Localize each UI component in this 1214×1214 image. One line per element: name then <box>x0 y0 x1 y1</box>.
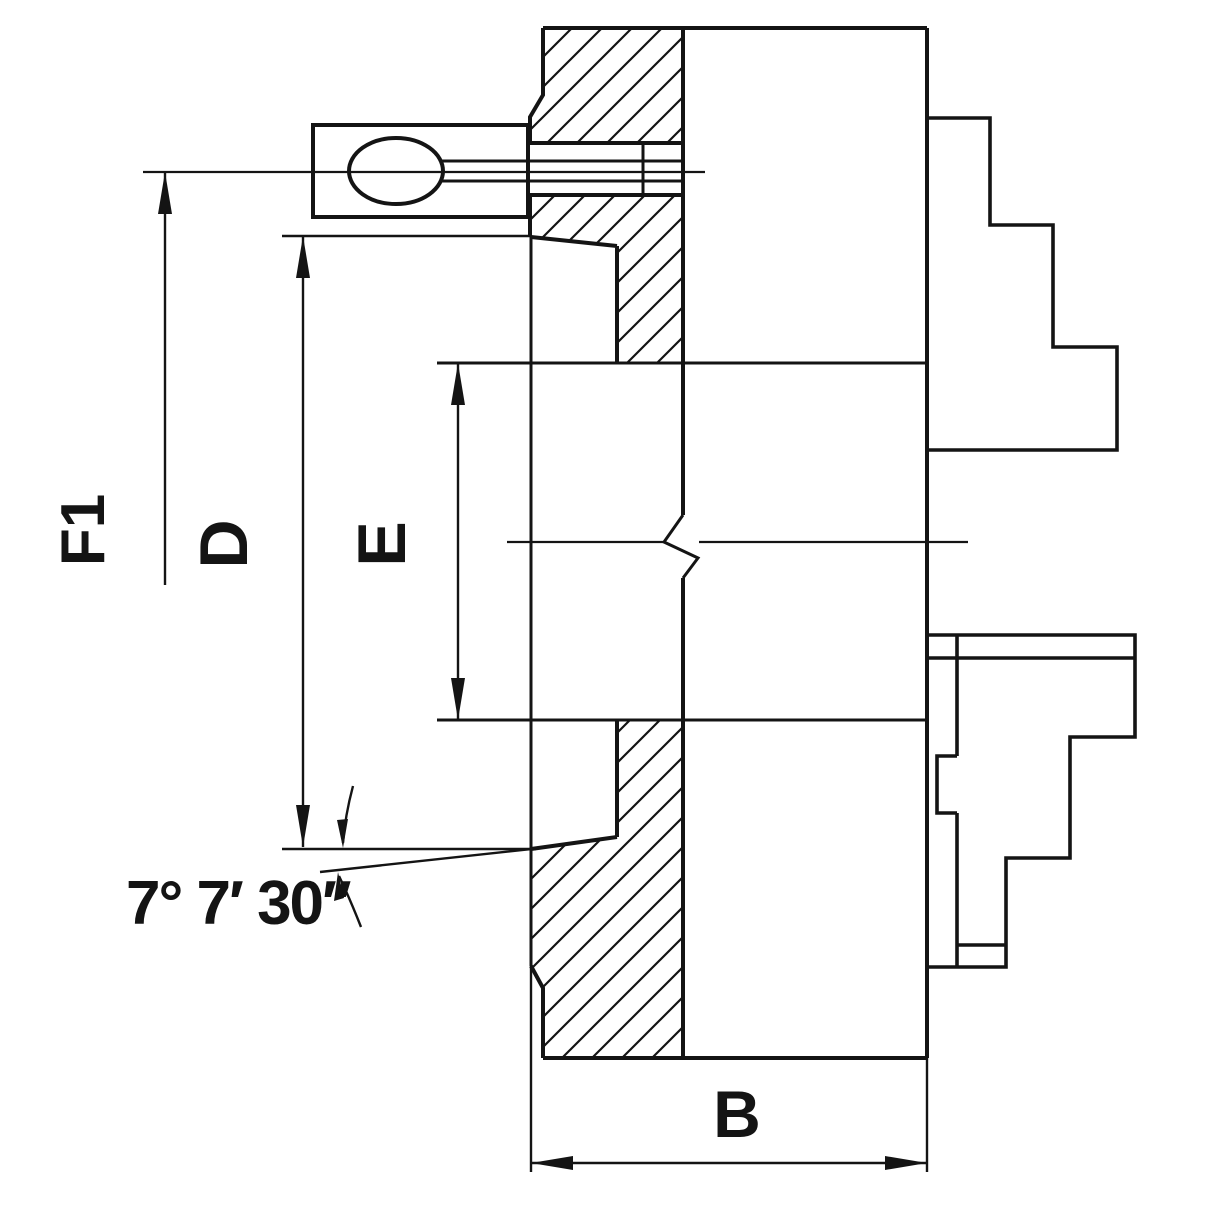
key-groove-lines <box>528 143 683 195</box>
bottom-jaw-profile <box>927 635 1135 967</box>
technical-drawing: F1 D E B <box>0 0 1214 1214</box>
top-jaw-steps <box>927 118 1117 450</box>
label-b: B <box>713 1077 761 1151</box>
e-arrowhead-up <box>451 363 465 405</box>
f1-arrowhead-up <box>158 172 172 214</box>
hatch-region-bottom <box>531 720 683 1058</box>
b-arrowhead-right <box>885 1156 927 1170</box>
drawing-canvas: F1 D E B <box>0 0 1214 1214</box>
e-arrowhead-down <box>451 678 465 720</box>
dimension-f1: F1 <box>49 172 172 585</box>
top-jaw-profile <box>927 118 1117 450</box>
taper-extension-line <box>320 849 531 872</box>
dimension-e: E <box>344 363 465 720</box>
d-arrowhead-down <box>296 805 310 847</box>
bottom-jaw-notch <box>937 756 957 813</box>
taper-edge-bottom <box>531 720 617 849</box>
label-f1: F1 <box>49 494 118 566</box>
label-taper-angle: 7° 7′ 30″ <box>126 869 351 938</box>
d-arrowhead-up <box>296 236 310 278</box>
angle-annotation: 7° 7′ 30″ <box>126 786 531 938</box>
break-symbol <box>664 515 698 578</box>
label-e: E <box>344 521 420 566</box>
angle-arrowhead-down <box>337 819 348 848</box>
label-d: D <box>186 519 262 568</box>
hatch-region-middle <box>530 195 683 363</box>
hatch-region-top <box>530 28 683 143</box>
taper-edge-top <box>531 237 617 363</box>
b-arrowhead-left <box>531 1156 573 1170</box>
